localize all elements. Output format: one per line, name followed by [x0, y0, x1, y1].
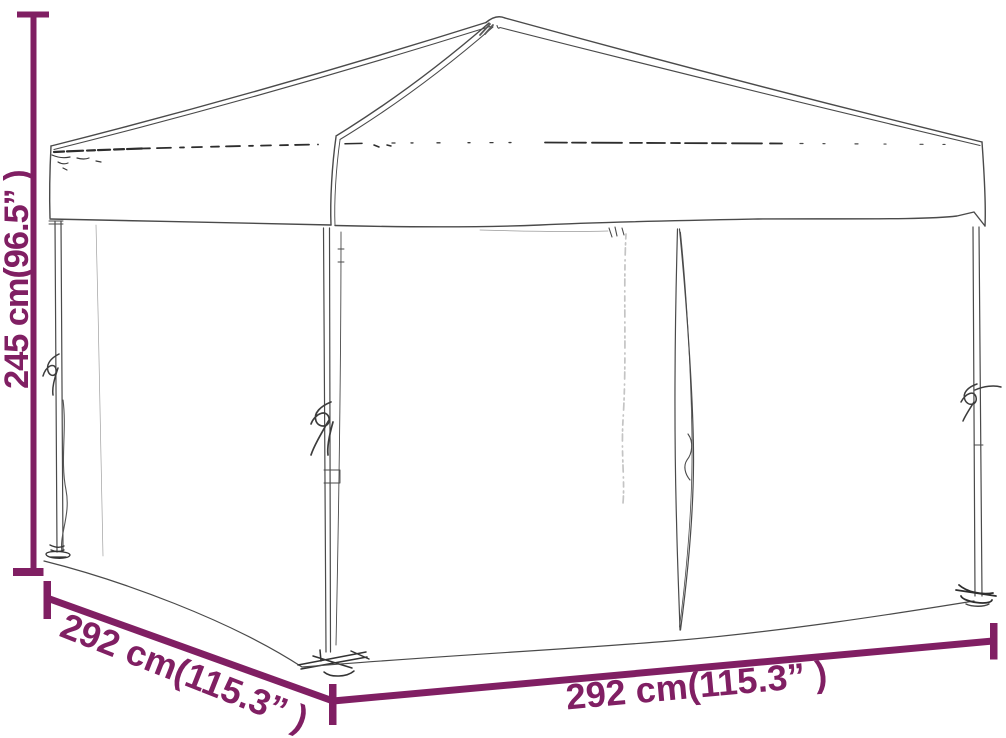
svg-text:245 cm(96.5” ): 245 cm(96.5” ) [0, 170, 36, 389]
